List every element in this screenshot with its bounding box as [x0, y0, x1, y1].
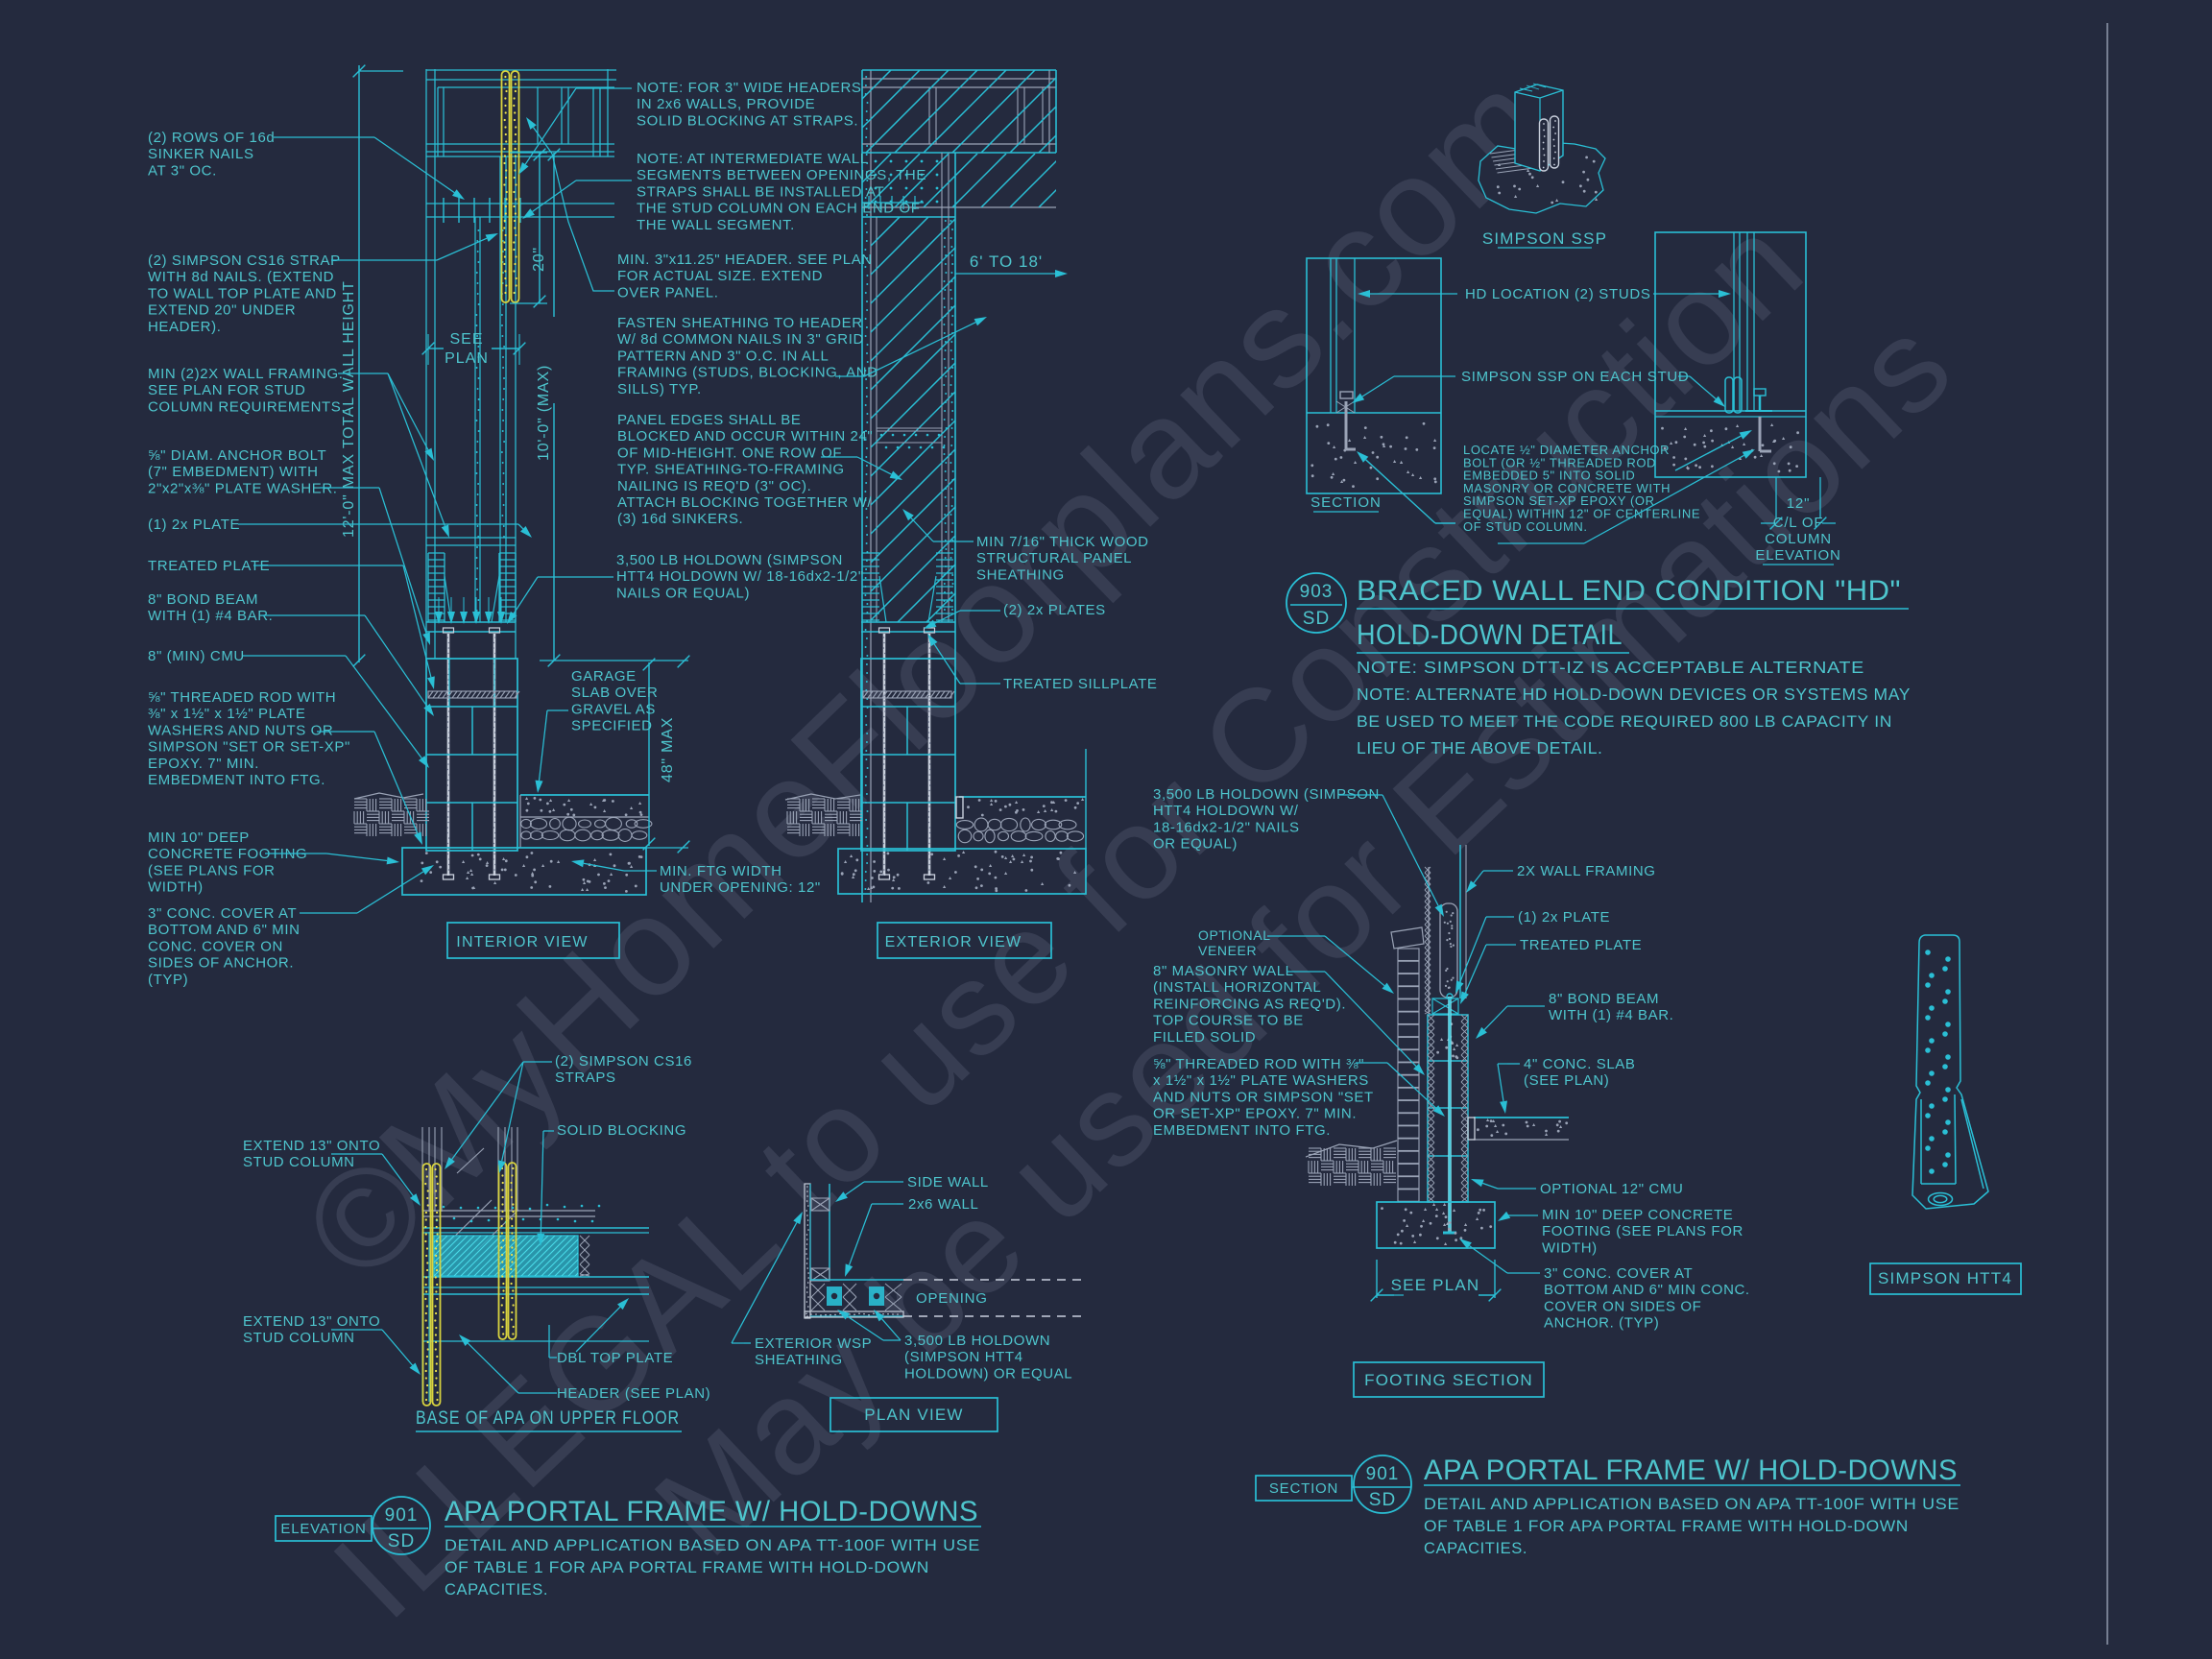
- svg-text:TREATED PLATE: TREATED PLATE: [1520, 937, 1642, 953]
- svg-text:NOTE: FOR 3" WIDE HEADERS: NOTE: FOR 3" WIDE HEADERS: [637, 80, 862, 96]
- svg-text:TO WALL TOP PLATE AND: TO WALL TOP PLATE AND: [148, 285, 337, 301]
- svg-text:BE USED TO MEET THE CODE REQUI: BE USED TO MEET THE CODE REQUIRED 800 LB…: [1357, 713, 1892, 731]
- svg-text:VENEER: VENEER: [1198, 943, 1257, 958]
- svg-text:(2) SIMPSON CS16: (2) SIMPSON CS16: [555, 1053, 692, 1070]
- svg-text:(1) 2x PLATE: (1) 2x PLATE: [148, 517, 240, 533]
- svg-text:THE WALL SEGMENT.: THE WALL SEGMENT.: [637, 217, 795, 233]
- svg-text:HTT4 HOLDOWN W/ 18-16dx2-1/2": HTT4 HOLDOWN W/ 18-16dx2-1/2": [616, 568, 864, 585]
- svg-text:MIN. FTG WIDTH: MIN. FTG WIDTH: [660, 863, 782, 879]
- svg-text:(SIMPSON HTT4: (SIMPSON HTT4: [904, 1349, 1023, 1365]
- svg-text:3,500 LB HOLDOWN (SIMPSON: 3,500 LB HOLDOWN (SIMPSON: [616, 552, 843, 568]
- svg-text:(2) SIMPSON CS16 STRAP: (2) SIMPSON CS16 STRAP: [148, 252, 341, 269]
- svg-text:PANEL EDGES SHALL BE: PANEL EDGES SHALL BE: [617, 412, 802, 428]
- svg-text:⅜" x 1½" x 1½" PLATE: ⅜" x 1½" x 1½" PLATE: [148, 706, 305, 722]
- svg-text:2"x2"x⅜" PLATE WASHER.: 2"x2"x⅜" PLATE WASHER.: [148, 480, 338, 496]
- svg-text:TOP COURSE TO BE: TOP COURSE TO BE: [1153, 1013, 1304, 1029]
- svg-text:UNDER OPENING: 12": UNDER OPENING: 12": [660, 879, 821, 896]
- svg-text:SILLS) TYP.: SILLS) TYP.: [617, 381, 702, 397]
- svg-text:901: 901: [1366, 1464, 1400, 1484]
- svg-text:MIN 10" DEEP CONCRETE: MIN 10" DEEP CONCRETE: [1542, 1207, 1733, 1223]
- svg-text:12": 12": [1787, 495, 1810, 512]
- svg-text:2X WALL FRAMING: 2X WALL FRAMING: [1517, 863, 1656, 879]
- svg-text:SECTION: SECTION: [1310, 494, 1382, 511]
- svg-text:IN 2x6 WALLS, PROVIDE: IN 2x6 WALLS, PROVIDE: [637, 96, 815, 112]
- svg-text:BOTTOM AND 6" MIN: BOTTOM AND 6" MIN: [148, 922, 301, 938]
- svg-text:901: 901: [385, 1505, 419, 1526]
- svg-text:HOLD-DOWN DETAIL: HOLD-DOWN DETAIL: [1357, 619, 1623, 651]
- svg-text:OVER PANEL.: OVER PANEL.: [617, 284, 719, 301]
- svg-text:SEE: SEE: [449, 331, 483, 348]
- svg-text:AND NUTS OR SIMPSON "SET: AND NUTS OR SIMPSON "SET: [1153, 1089, 1374, 1105]
- svg-text:REINFORCING AS REQ'D).: REINFORCING AS REQ'D).: [1153, 996, 1346, 1012]
- svg-text:WITH (1) #4 BAR.: WITH (1) #4 BAR.: [1549, 1007, 1673, 1023]
- svg-text:EMBEDMENT INTO FTG.: EMBEDMENT INTO FTG.: [148, 772, 325, 788]
- svg-text:FASTEN SHEATHING TO HEADER: FASTEN SHEATHING TO HEADER: [617, 315, 863, 331]
- svg-text:(2) 2x PLATES: (2) 2x PLATES: [1003, 602, 1106, 618]
- svg-text:SIMPSON SSP: SIMPSON SSP: [1482, 229, 1607, 248]
- svg-text:THE STUD COLUMN ON EACH END OF: THE STUD COLUMN ON EACH END OF: [637, 201, 921, 217]
- svg-text:SIDES OF ANCHOR.: SIDES OF ANCHOR.: [148, 955, 294, 972]
- svg-text:48" MAX: 48" MAX: [660, 717, 676, 782]
- svg-text:EXTERIOR VIEW: EXTERIOR VIEW: [885, 934, 1022, 950]
- svg-text:SEE PLAN FOR STUD: SEE PLAN FOR STUD: [148, 382, 305, 398]
- svg-text:(7" EMBEDMENT) WITH: (7" EMBEDMENT) WITH: [148, 464, 319, 480]
- svg-text:WIDTH): WIDTH): [148, 879, 204, 896]
- svg-text:APA PORTAL FRAME W/ HOLD-DOWNS: APA PORTAL FRAME W/ HOLD-DOWNS: [1424, 1455, 1958, 1486]
- svg-text:SPECIFIED: SPECIFIED: [571, 718, 653, 734]
- svg-text:SEGMENTS BETWEEN OPENINGS, THE: SEGMENTS BETWEEN OPENINGS, THE: [637, 167, 926, 183]
- svg-text:3,500 LB HOLDOWN: 3,500 LB HOLDOWN: [904, 1333, 1050, 1349]
- svg-text:LIEU OF THE ABOVE DETAIL.: LIEU OF THE ABOVE DETAIL.: [1357, 738, 1603, 757]
- svg-text:⅝" DIAM. ANCHOR BOLT: ⅝" DIAM. ANCHOR BOLT: [148, 447, 326, 464]
- svg-text:MIN. 3"x11.25" HEADER. SEE PLA: MIN. 3"x11.25" HEADER. SEE PLAN: [617, 252, 873, 268]
- svg-text:(1) 2x PLATE: (1) 2x PLATE: [1518, 909, 1610, 926]
- svg-text:FRAMING (STUDS, BLOCKING, AND: FRAMING (STUDS, BLOCKING, AND: [617, 365, 878, 381]
- svg-text:COVER ON SIDES OF: COVER ON SIDES OF: [1544, 1298, 1701, 1314]
- svg-text:EXTERIOR WSP: EXTERIOR WSP: [755, 1335, 872, 1352]
- svg-text:4" CONC. SLAB: 4" CONC. SLAB: [1524, 1056, 1636, 1072]
- svg-text:MIN 10" DEEP: MIN 10" DEEP: [148, 829, 250, 846]
- svg-text:NAILING IS REQ'D (3" OC).: NAILING IS REQ'D (3" OC).: [617, 478, 811, 494]
- svg-text:(SEE PLANS FOR: (SEE PLANS FOR: [148, 862, 276, 878]
- svg-text:SEE PLAN: SEE PLAN: [1391, 1276, 1480, 1294]
- svg-text:8" BOND BEAM: 8" BOND BEAM: [148, 591, 258, 608]
- svg-text:(SEE PLAN): (SEE PLAN): [1524, 1072, 1609, 1089]
- svg-text:GRAVEL AS: GRAVEL AS: [571, 701, 656, 717]
- svg-text:8" BOND BEAM: 8" BOND BEAM: [1549, 991, 1659, 1007]
- svg-text:CONCRETE FOOTING: CONCRETE FOOTING: [148, 846, 307, 862]
- svg-text:PLAN VIEW: PLAN VIEW: [864, 1406, 963, 1424]
- svg-text:EPOXY. 7" MIN.: EPOXY. 7" MIN.: [148, 756, 259, 772]
- svg-text:HD LOCATION (2) STUDS: HD LOCATION (2) STUDS: [1465, 286, 1651, 302]
- svg-text:WIDTH): WIDTH): [1542, 1239, 1598, 1256]
- svg-text:NAILS OR EQUAL): NAILS OR EQUAL): [616, 585, 750, 601]
- svg-text:WASHERS AND NUTS OR: WASHERS AND NUTS OR: [148, 722, 333, 738]
- svg-text:EXTEND 13" ONTO: EXTEND 13" ONTO: [243, 1313, 380, 1330]
- svg-text:SIMPSON "SET OR SET-XP": SIMPSON "SET OR SET-XP": [148, 739, 350, 756]
- svg-text:W/ 8d COMMON NAILS IN 3" GRID: W/ 8d COMMON NAILS IN 3" GRID: [617, 331, 864, 348]
- svg-text:OPTIONAL 12" CMU: OPTIONAL 12" CMU: [1540, 1181, 1683, 1197]
- svg-text:EXTEND 13" ONTO: EXTEND 13" ONTO: [243, 1138, 380, 1154]
- svg-text:ELEVATION: ELEVATION: [280, 1521, 366, 1537]
- svg-text:STUD COLUMN: STUD COLUMN: [243, 1154, 355, 1170]
- svg-text:OF TABLE 1 FOR APA PORTAL FRAM: OF TABLE 1 FOR APA PORTAL FRAME WITH HOL…: [1424, 1518, 1909, 1535]
- svg-text:FOOTING SECTION: FOOTING SECTION: [1364, 1371, 1533, 1389]
- svg-text:STUD COLUMN: STUD COLUMN: [243, 1330, 355, 1346]
- svg-text:⅝" THREADED ROD WITH ⅜": ⅝" THREADED ROD WITH ⅜": [1153, 1056, 1364, 1072]
- svg-text:SD: SD: [1369, 1490, 1396, 1510]
- svg-text:HEADER (SEE PLAN): HEADER (SEE PLAN): [557, 1385, 710, 1402]
- svg-text:903: 903: [1300, 582, 1334, 602]
- svg-text:AT 3" OC.: AT 3" OC.: [148, 162, 217, 179]
- svg-text:2x6 WALL: 2x6 WALL: [908, 1196, 978, 1213]
- svg-text:(3) 16d SINKERS.: (3) 16d SINKERS.: [617, 511, 743, 527]
- svg-text:HOLDOWN) OR EQUAL: HOLDOWN) OR EQUAL: [904, 1365, 1072, 1382]
- svg-text:20": 20": [531, 247, 547, 272]
- svg-text:OR SET-XP" EPOXY. 7" MIN.: OR SET-XP" EPOXY. 7" MIN.: [1153, 1106, 1357, 1122]
- svg-text:WITH (1) #4 BAR.: WITH (1) #4 BAR.: [148, 608, 273, 624]
- svg-text:ELEVATION: ELEVATION: [1755, 547, 1840, 564]
- svg-text:STRAPS: STRAPS: [555, 1070, 616, 1086]
- svg-text:DBL TOP PLATE: DBL TOP PLATE: [557, 1350, 673, 1366]
- svg-text:SHEATHING: SHEATHING: [755, 1352, 843, 1368]
- svg-text:CONC. COVER ON: CONC. COVER ON: [148, 938, 283, 954]
- svg-text:OPENING: OPENING: [916, 1290, 988, 1307]
- svg-text:x 1½" x 1½" PLATE WASHERS: x 1½" x 1½" PLATE WASHERS: [1153, 1072, 1369, 1089]
- svg-text:8" MASONRY WALL: 8" MASONRY WALL: [1153, 963, 1294, 979]
- svg-text:OR EQUAL): OR EQUAL): [1153, 836, 1238, 853]
- svg-text:TYP. SHEATHING-TO-FRAMING: TYP. SHEATHING-TO-FRAMING: [617, 462, 845, 478]
- svg-text:10'-0" (MAX): 10'-0" (MAX): [536, 365, 552, 461]
- svg-text:DETAIL AND APPLICATION BASED O: DETAIL AND APPLICATION BASED ON APA TT-1…: [445, 1537, 980, 1554]
- svg-text:MIN (2)2X WALL FRAMING.: MIN (2)2X WALL FRAMING.: [148, 366, 344, 382]
- svg-text:BRACED WALL END CONDITION "HD": BRACED WALL END CONDITION "HD": [1357, 575, 1901, 607]
- svg-text:FOOTING (SEE PLANS FOR: FOOTING (SEE PLANS FOR: [1542, 1223, 1743, 1239]
- svg-text:NOTE: ALTERNATE HD HOLD-DOWN D: NOTE: ALTERNATE HD HOLD-DOWN DEVICES OR …: [1357, 685, 1911, 704]
- svg-text:OPTIONAL: OPTIONAL: [1198, 927, 1271, 943]
- svg-text:CAPACITIES.: CAPACITIES.: [1424, 1540, 1527, 1557]
- svg-text:SINKER NAILS: SINKER NAILS: [148, 146, 254, 162]
- svg-text:TREATED PLATE: TREATED PLATE: [148, 558, 270, 574]
- svg-text:FILLED SOLID: FILLED SOLID: [1153, 1029, 1256, 1046]
- svg-text:SIMPSON HTT4: SIMPSON HTT4: [1878, 1269, 2012, 1287]
- svg-text:COLUMN REQUIREMENTS.: COLUMN REQUIREMENTS.: [148, 398, 346, 415]
- svg-text:ATTACH BLOCKING TOGETHER W/: ATTACH BLOCKING TOGETHER W/: [617, 494, 872, 511]
- svg-text:PLAN: PLAN: [445, 350, 489, 367]
- svg-text:(TYP): (TYP): [148, 972, 188, 988]
- svg-text:SD: SD: [388, 1531, 415, 1551]
- svg-text:HEADER).: HEADER).: [148, 319, 221, 335]
- svg-text:STRAPS SHALL BE INSTALLED AT: STRAPS SHALL BE INSTALLED AT: [637, 183, 884, 200]
- svg-text:(INSTALL HORIZONTAL: (INSTALL HORIZONTAL: [1153, 979, 1321, 996]
- svg-text:NOTE: AT INTERMEDIATE WALL: NOTE: AT INTERMEDIATE WALL: [637, 151, 869, 167]
- svg-text:C/L OF: C/L OF: [1773, 515, 1824, 531]
- svg-text:3" CONC. COVER AT: 3" CONC. COVER AT: [1544, 1265, 1693, 1282]
- svg-text:3" CONC. COVER AT: 3" CONC. COVER AT: [148, 905, 297, 922]
- svg-text:INTERIOR VIEW: INTERIOR VIEW: [456, 934, 588, 950]
- svg-text:DETAIL AND APPLICATION BASED O: DETAIL AND APPLICATION BASED ON APA TT-1…: [1424, 1496, 1960, 1513]
- svg-text:HTT4 HOLDOWN W/: HTT4 HOLDOWN W/: [1153, 803, 1299, 819]
- svg-text:OF STUD COLUMN.: OF STUD COLUMN.: [1463, 519, 1588, 534]
- svg-text:APA PORTAL FRAME W/ HOLD-DOWNS: APA PORTAL FRAME W/ HOLD-DOWNS: [445, 1496, 978, 1527]
- svg-text:MIN 7/16" THICK WOOD: MIN 7/16" THICK WOOD: [976, 534, 1149, 550]
- svg-text:PATTERN AND 3" O.C. IN ALL: PATTERN AND 3" O.C. IN ALL: [617, 348, 829, 364]
- svg-text:OF MID-HEIGHT. ONE ROW OF: OF MID-HEIGHT. ONE ROW OF: [617, 445, 842, 461]
- svg-text:SHEATHING: SHEATHING: [976, 566, 1065, 583]
- svg-text:NOTE: SIMPSON DTT-IZ IS ACCEPT: NOTE: SIMPSON DTT-IZ IS ACCEPTABLE ALTER…: [1357, 658, 1864, 677]
- svg-text:SIMPSON SSP ON EACH STUD: SIMPSON SSP ON EACH STUD: [1461, 369, 1689, 385]
- svg-text:WITH 8d NAILS. (EXTEND: WITH 8d NAILS. (EXTEND: [148, 269, 334, 285]
- svg-text:FOR ACTUAL SIZE. EXTEND: FOR ACTUAL SIZE. EXTEND: [617, 268, 823, 284]
- svg-text:OF TABLE 1 FOR APA PORTAL FRAM: OF TABLE 1 FOR APA PORTAL FRAME WITH HOL…: [445, 1559, 929, 1576]
- svg-text:TREATED SILLPLATE: TREATED SILLPLATE: [1003, 676, 1158, 692]
- svg-text:EXTEND 20" UNDER: EXTEND 20" UNDER: [148, 302, 296, 319]
- svg-text:(2) ROWS OF 16d: (2) ROWS OF 16d: [148, 130, 275, 146]
- svg-text:ANCHOR. (TYP): ANCHOR. (TYP): [1544, 1315, 1659, 1332]
- svg-text:SOLID BLOCKING: SOLID BLOCKING: [557, 1122, 686, 1139]
- svg-text:CAPACITIES.: CAPACITIES.: [445, 1581, 548, 1599]
- svg-text:GARAGE: GARAGE: [571, 668, 637, 685]
- svg-text:SOLID BLOCKING AT STRAPS.: SOLID BLOCKING AT STRAPS.: [637, 112, 858, 129]
- svg-text:BASE OF APA ON UPPER FLOOR: BASE OF APA ON UPPER FLOOR: [416, 1408, 680, 1429]
- svg-text:EMBEDMENT INTO FTG.: EMBEDMENT INTO FTG.: [1153, 1122, 1331, 1139]
- svg-text:SECTION: SECTION: [1269, 1480, 1338, 1497]
- svg-text:SIDE WALL: SIDE WALL: [907, 1174, 989, 1190]
- svg-text:18-16dx2-1/2" NAILS: 18-16dx2-1/2" NAILS: [1153, 819, 1300, 835]
- svg-text:SLAB OVER: SLAB OVER: [571, 685, 658, 701]
- svg-text:8" (MIN) CMU: 8" (MIN) CMU: [148, 648, 245, 664]
- svg-text:SD: SD: [1303, 609, 1330, 629]
- svg-text:COLUMN: COLUMN: [1765, 531, 1832, 547]
- svg-text:⅝" THREADED ROD WITH: ⅝" THREADED ROD WITH: [148, 689, 336, 706]
- svg-text:BLOCKED AND OCCUR WITHIN 24": BLOCKED AND OCCUR WITHIN 24": [617, 428, 873, 445]
- svg-text:STRUCTURAL PANEL: STRUCTURAL PANEL: [976, 550, 1132, 566]
- svg-text:BOTTOM AND 6" MIN CONC.: BOTTOM AND 6" MIN CONC.: [1544, 1282, 1750, 1298]
- svg-text:6' TO 18': 6' TO 18': [970, 252, 1043, 271]
